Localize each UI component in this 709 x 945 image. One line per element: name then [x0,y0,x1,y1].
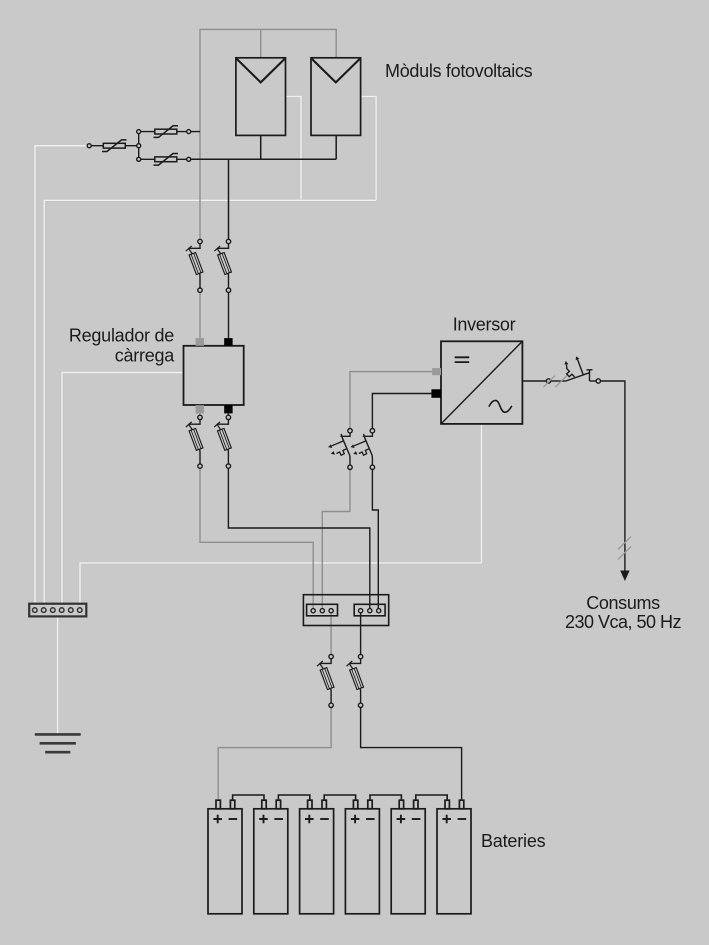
svg-text:230 Vca, 50 Hz: 230 Vca, 50 Hz [565,612,682,632]
svg-text:Regulador de: Regulador de [69,325,174,345]
svg-text:càrrega: càrrega [115,345,176,365]
svg-text:Mòduls fotovoltaics: Mòduls fotovoltaics [385,61,533,81]
svg-text:Consums: Consums [586,593,660,613]
svg-text:Bateries: Bateries [481,831,546,851]
svg-text:Inversor: Inversor [453,314,516,334]
